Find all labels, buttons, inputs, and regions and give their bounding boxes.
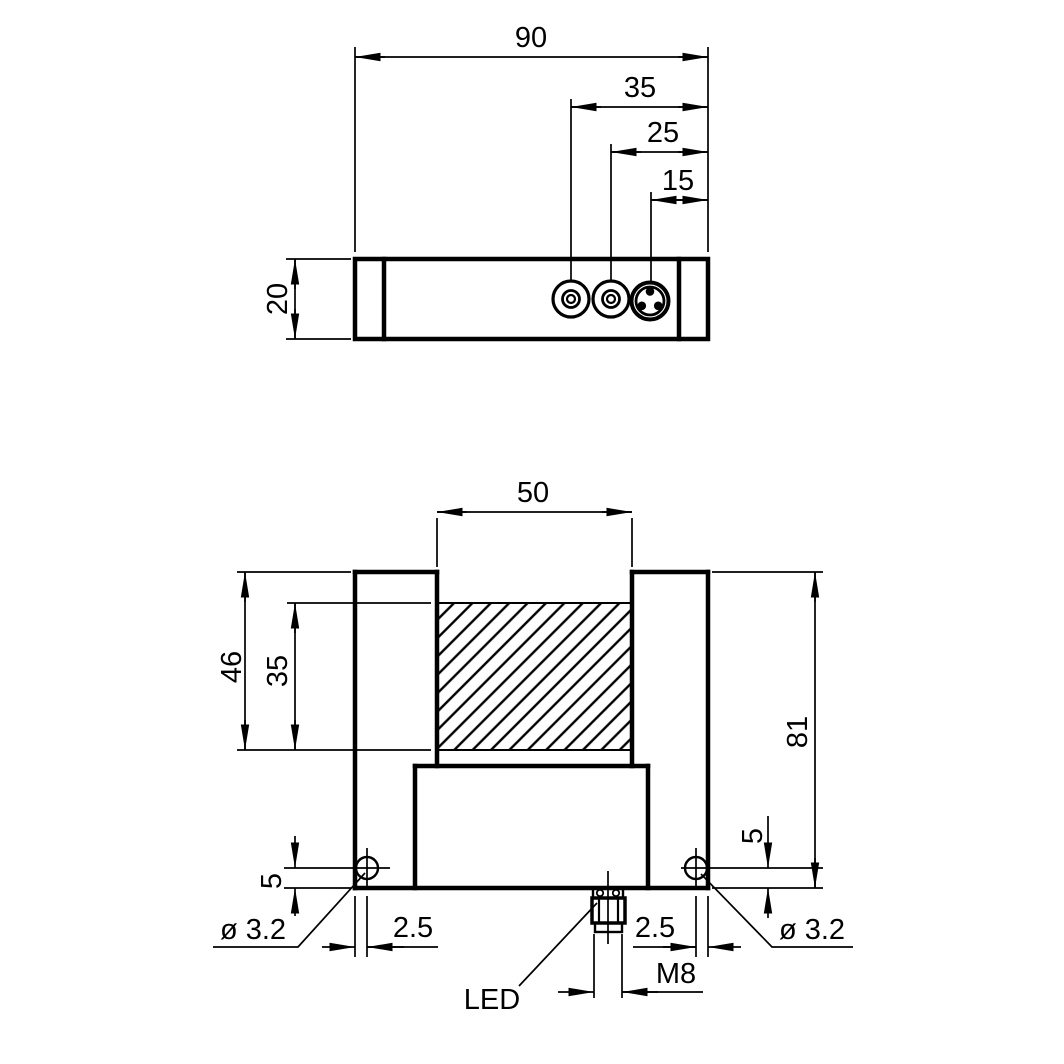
- dim-hole-offset-left: 5: [256, 836, 390, 916]
- dim-label: 25: [647, 117, 679, 149]
- dim-thickness: 20: [262, 259, 351, 339]
- dim-knob2-from-right: 25: [611, 117, 708, 281]
- dim-label: 5: [256, 873, 288, 889]
- connector-face: [632, 283, 669, 320]
- adjuster-knob-1: [553, 281, 589, 317]
- dim-label: 81: [782, 716, 814, 748]
- led-label: LED: [464, 984, 520, 1016]
- front-view: 50 46 35 81: [213, 477, 853, 1016]
- m8-connector: [592, 871, 625, 944]
- sensing-window-hatch: [437, 603, 632, 750]
- dim-label: 2.5: [393, 912, 433, 944]
- adjuster-knob-2: [593, 281, 629, 317]
- dim-connector-thread: M8: [558, 934, 703, 998]
- dim-label: 20: [262, 283, 294, 315]
- dim-label: 46: [216, 651, 248, 683]
- dim-label: 15: [662, 165, 694, 197]
- dim-label: 5: [737, 828, 769, 844]
- dim-label: ø 3.2: [220, 914, 286, 946]
- dim-slot-width: 50: [437, 477, 632, 567]
- top-view: 90 35 25 15: [262, 22, 708, 339]
- dim-label: 50: [517, 477, 549, 509]
- dim-hole-inset-right: 2.5: [633, 896, 741, 957]
- led-dot-icon: [597, 890, 603, 896]
- dim-label: 35: [624, 72, 656, 104]
- dim-window-height: 35: [262, 603, 295, 750]
- dim-label: 35: [262, 655, 294, 687]
- connector-pin-icon: [654, 302, 663, 311]
- technical-drawing-canvas: 90 35 25 15: [0, 0, 1064, 1064]
- dimension-drawing: 90 35 25 15: [0, 0, 1064, 1064]
- dim-hole-offset-right: 5: [681, 816, 823, 918]
- callout-led: LED: [464, 903, 597, 1016]
- dim-label: 90: [515, 22, 547, 54]
- dim-slot-depth: 46: [216, 572, 248, 750]
- dim-label: ø 3.2: [779, 914, 845, 946]
- dim-hole-inset-left: 2.5: [322, 896, 438, 957]
- leader-line: [519, 903, 597, 986]
- dim-label: 2.5: [635, 912, 675, 944]
- dim-label: M8: [656, 958, 696, 990]
- callout-hole-diameter-left: ø 3.2: [213, 873, 365, 947]
- top-view-body-outline: [355, 259, 708, 339]
- callout-hole-diameter-right: ø 3.2: [701, 874, 853, 947]
- connector-pin-icon: [646, 287, 655, 296]
- connector-pin-icon: [638, 302, 647, 311]
- led-dot-icon: [613, 890, 619, 896]
